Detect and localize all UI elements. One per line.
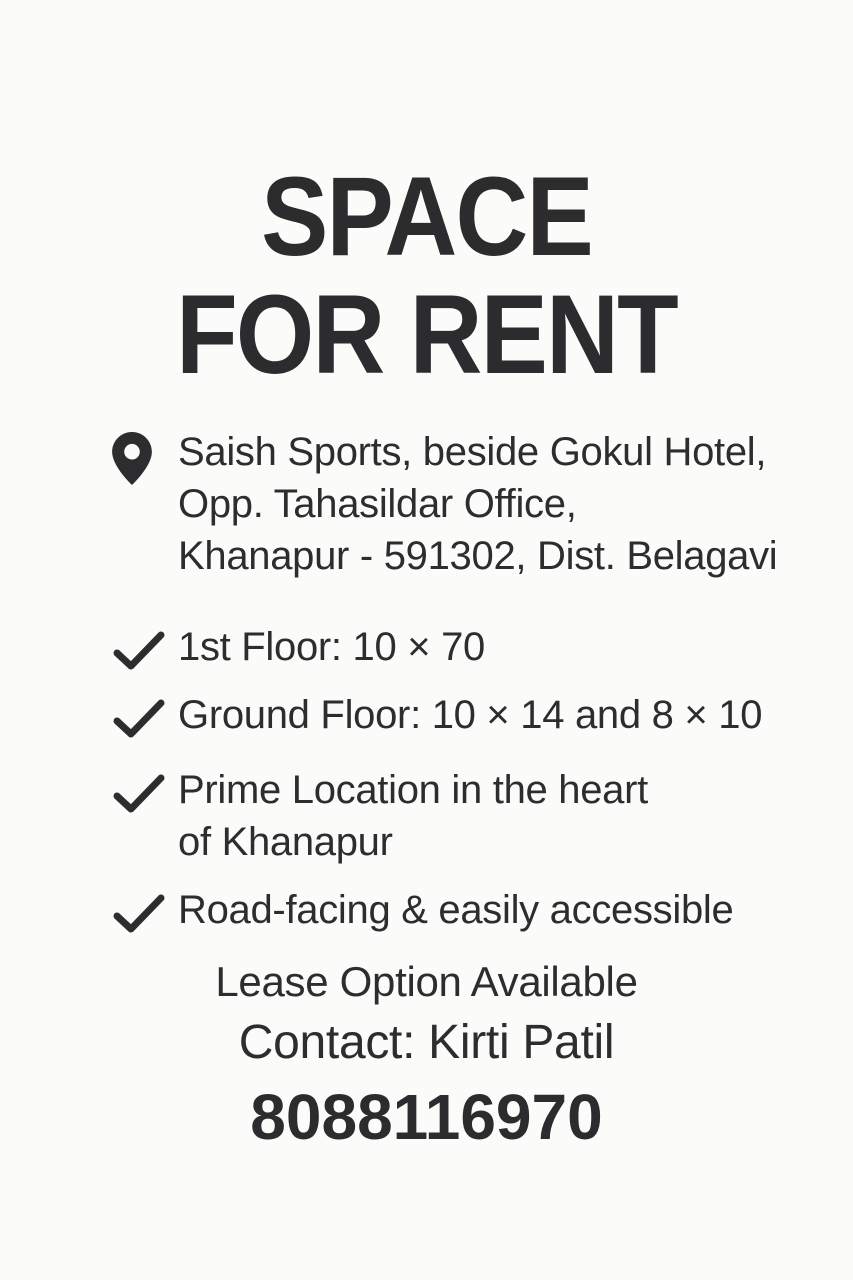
space-for-rent-flyer: SPACE FOR RENT Saish Sports, beside Goku… xyxy=(0,0,853,1280)
feature-item-road-facing: Road-facing & easily accessible xyxy=(112,884,733,936)
location-pin-icon xyxy=(112,432,152,485)
feature-text: Prime Location in the heart of Khanapur xyxy=(178,764,648,868)
poster-title: SPACE FOR RENT xyxy=(43,158,811,394)
feature-line: Prime Location in the heart xyxy=(178,764,648,816)
feature-item-prime-location: Prime Location in the heart of Khanapur xyxy=(112,764,648,868)
lease-option-note: Lease Option Available xyxy=(0,956,853,1008)
title-line-1: SPACE xyxy=(43,158,811,276)
checkmark-icon xyxy=(112,893,168,935)
feature-line: 1st Floor: 10 × 70 xyxy=(178,621,485,673)
feature-text: 1st Floor: 10 × 70 xyxy=(178,621,485,673)
checkmark-icon xyxy=(112,630,168,672)
checkmark-icon xyxy=(112,698,168,740)
feature-line: Ground Floor: 10 × 14 and 8 × 10 xyxy=(178,689,762,741)
feature-item-first-floor: 1st Floor: 10 × 70 xyxy=(112,621,485,673)
feature-text: Ground Floor: 10 × 14 and 8 × 10 xyxy=(178,689,762,741)
feature-line: Road-facing & easily accessible xyxy=(178,884,733,936)
contact-phone-number: 8088116970 xyxy=(0,1080,853,1154)
title-line-2: FOR RENT xyxy=(43,276,811,394)
feature-line: of Khanapur xyxy=(178,816,648,868)
address-text: Saish Sports, beside Gokul Hotel, Opp. T… xyxy=(178,426,777,582)
address-line-3: Khanapur - 591302, Dist. Belagavi xyxy=(178,530,777,582)
address-line-2: Opp. Tahasildar Office, xyxy=(178,478,777,530)
address-block: Saish Sports, beside Gokul Hotel, Opp. T… xyxy=(112,426,777,582)
feature-text: Road-facing & easily accessible xyxy=(178,884,733,936)
feature-item-ground-floor: Ground Floor: 10 × 14 and 8 × 10 xyxy=(112,689,762,741)
address-line-1: Saish Sports, beside Gokul Hotel, xyxy=(178,426,777,478)
contact-name: Contact: Kirti Patil xyxy=(0,1014,853,1072)
checkmark-icon xyxy=(112,773,168,815)
